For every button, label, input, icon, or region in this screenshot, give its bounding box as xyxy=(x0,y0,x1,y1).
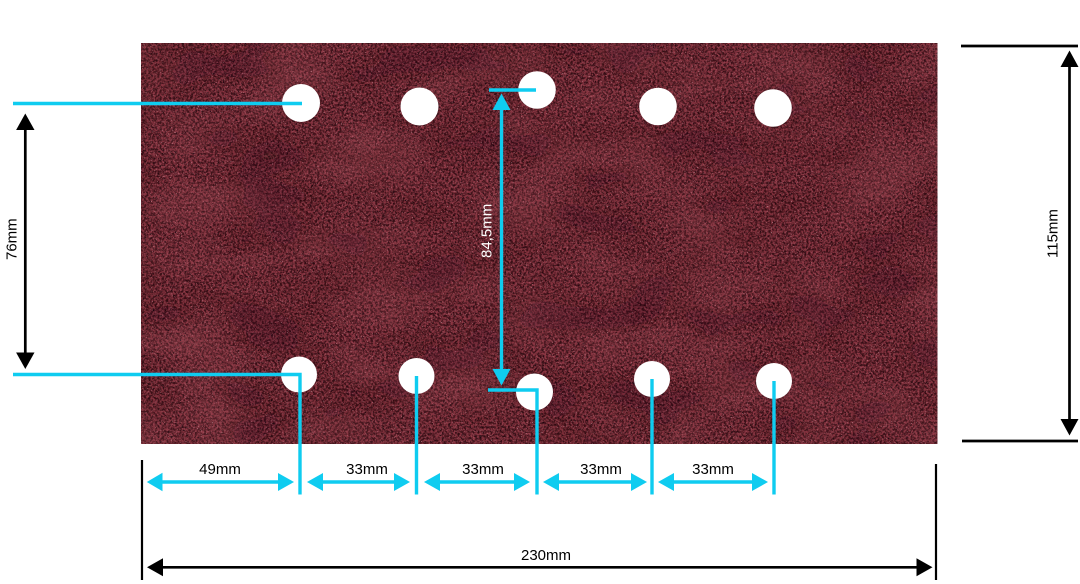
svg-text:76mm: 76mm xyxy=(4,218,21,260)
svg-text:84,5mm: 84,5mm xyxy=(479,204,496,258)
svg-text:33mm: 33mm xyxy=(580,461,622,478)
svg-text:230mm: 230mm xyxy=(521,547,571,564)
svg-text:115mm: 115mm xyxy=(1045,209,1062,258)
svg-text:33mm: 33mm xyxy=(692,461,734,478)
svg-text:33mm: 33mm xyxy=(346,461,388,478)
svg-text:33mm: 33mm xyxy=(462,461,504,478)
svg-text:49mm: 49mm xyxy=(199,461,241,478)
